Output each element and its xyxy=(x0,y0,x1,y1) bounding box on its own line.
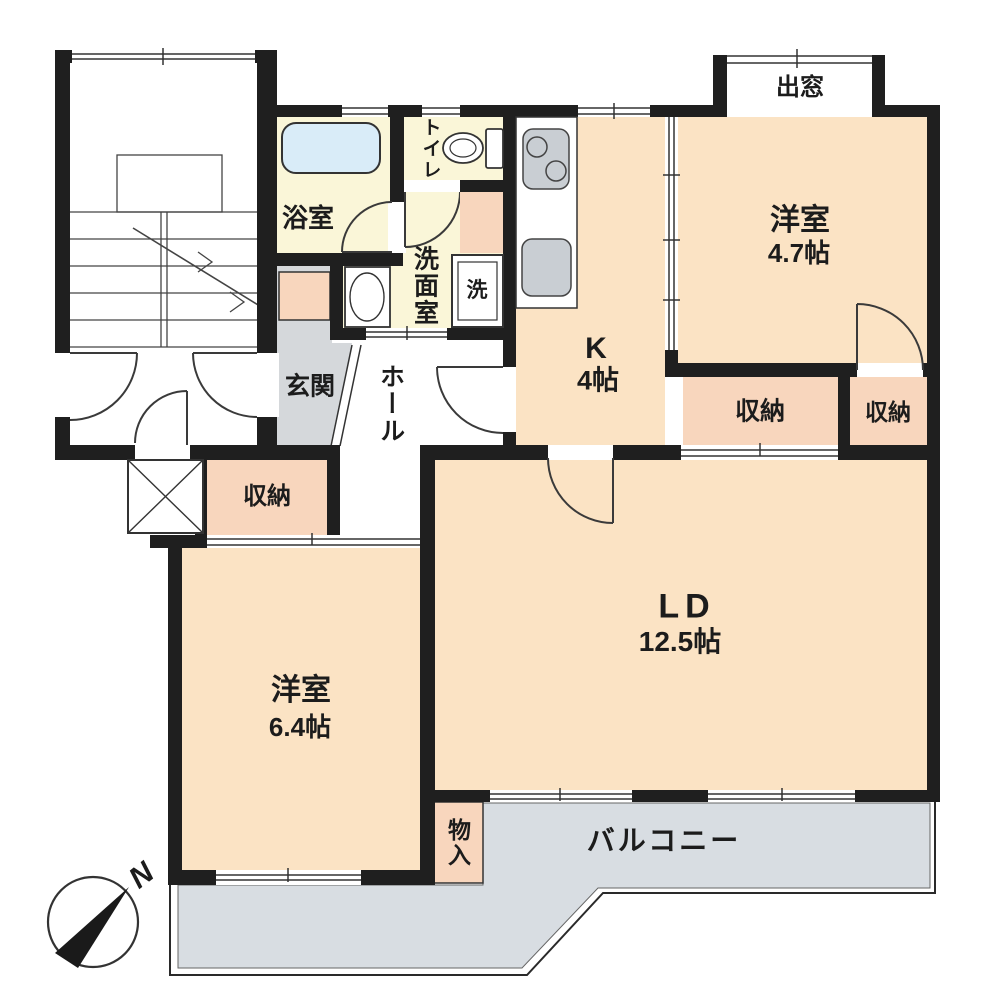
label-bay-window: 出窓 xyxy=(776,74,824,102)
label-washroom: 洗面室 xyxy=(412,246,437,327)
label-toilet: トイレ xyxy=(421,118,440,181)
door-hall-kitchen xyxy=(437,367,503,433)
label-storage-western1: 収納 xyxy=(865,399,911,425)
floor-plan-drawing xyxy=(0,0,1000,990)
bathtub xyxy=(282,123,380,173)
label-ld-name: LD xyxy=(658,587,715,626)
door-unit-entrance xyxy=(193,353,257,417)
label-kitchen-name: K xyxy=(585,332,607,367)
label-balcony: バルコニー xyxy=(587,825,741,857)
label-storage-ld: 収納 xyxy=(735,398,785,427)
label-hall: ホール xyxy=(378,364,403,445)
label-entrance: 玄関 xyxy=(285,373,335,402)
label-storage-balcony: 物入 xyxy=(446,818,469,868)
label-western1-size: 4.7帖 xyxy=(768,239,830,269)
label-western2-size: 6.4帖 xyxy=(269,713,331,743)
stove xyxy=(523,129,569,189)
label-bath: 浴室 xyxy=(282,204,334,234)
kitchen-sink xyxy=(522,239,571,296)
western-room2-area xyxy=(182,548,420,870)
staircase xyxy=(70,155,263,347)
vanity-sink xyxy=(345,267,390,327)
label-western1-name: 洋室 xyxy=(770,204,830,239)
shoe-cabinet xyxy=(279,272,330,320)
door-meter-box xyxy=(135,391,187,445)
meter-box xyxy=(128,460,203,533)
floor-plan: 出窓 洋室 4.7帖 トイレ 浴室 洗面室 洗 K 4帖 玄関 ホール 収納 収… xyxy=(0,0,1000,990)
label-kitchen-size: 4帖 xyxy=(577,365,619,396)
label-western2-name: 洋室 xyxy=(271,674,331,709)
washroom-counter xyxy=(460,192,503,253)
label-storage-entrance: 収納 xyxy=(243,483,291,511)
compass xyxy=(48,877,138,968)
label-washer: 洗 xyxy=(467,279,488,303)
door-landing-left xyxy=(70,353,137,420)
kitchen-counter xyxy=(516,117,577,308)
label-ld-size: 12.5帖 xyxy=(639,626,722,658)
